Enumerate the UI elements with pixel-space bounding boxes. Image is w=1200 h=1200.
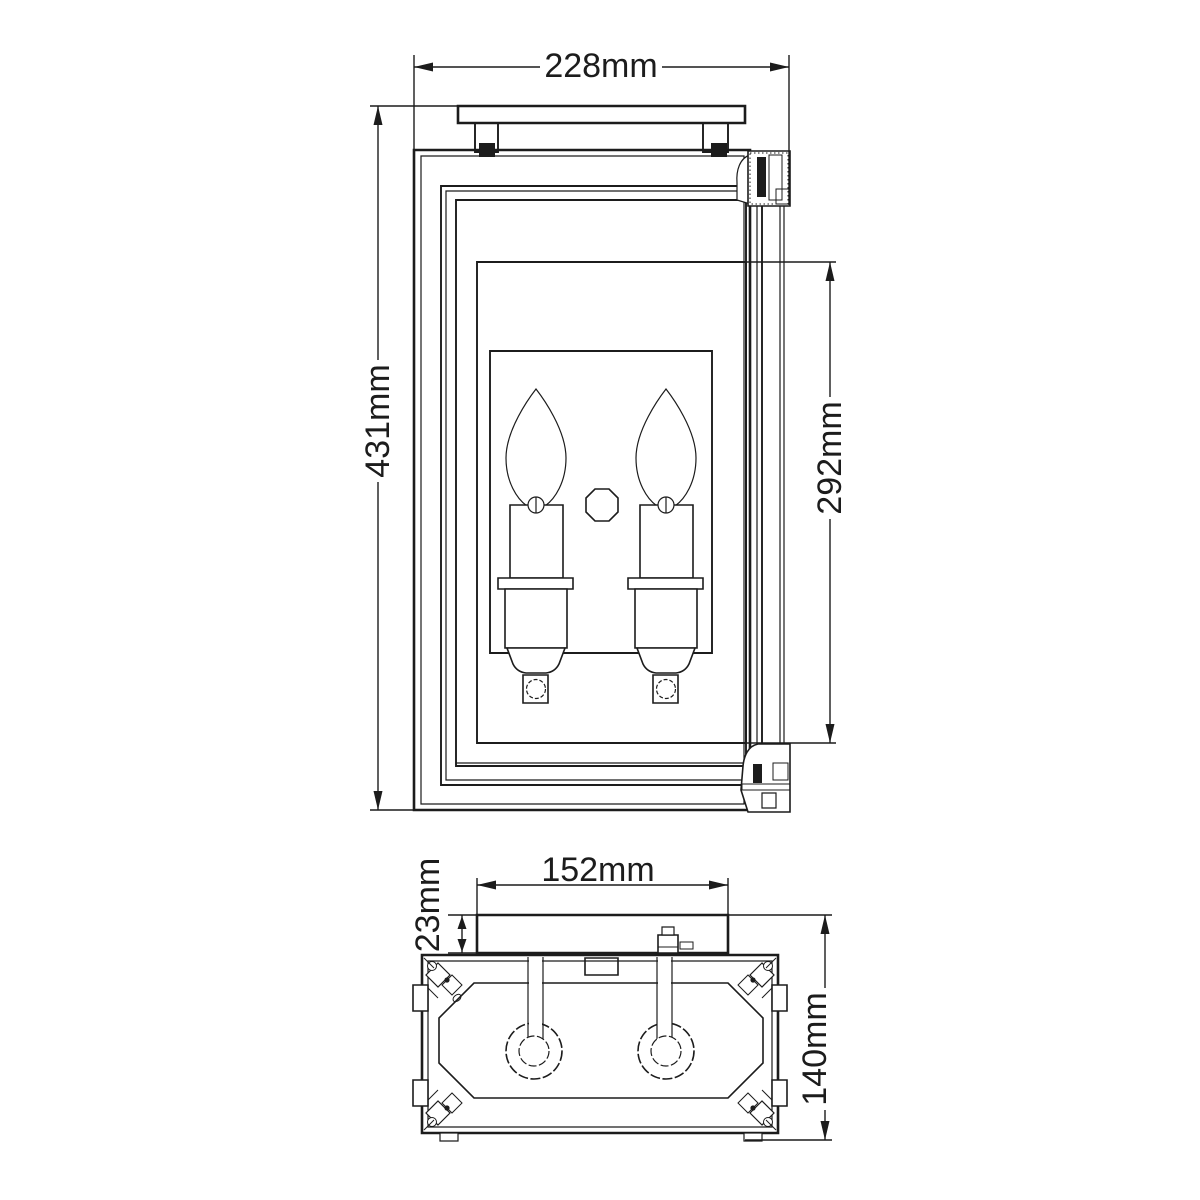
chamfered-roof-edge [439,983,763,1098]
dimension-label-overall-height: 431mm [359,364,397,477]
dimension-label-overall-width: 228mm [544,47,657,85]
socket-top-right [638,957,694,1079]
dimension-label-backplate-width: 152mm [541,851,654,889]
front-elevation-view: 228mm 431mm 292mm [359,47,849,812]
wall-bracket-top [737,151,790,206]
bulb-right [636,389,696,506]
candle-right [628,389,703,703]
corner-clamp-bottom-right [738,1090,776,1130]
wall-bracket-bottom [741,744,790,812]
dimension-backplate-width: 152mm [477,851,728,915]
dimension-label-overall-depth: 140mm [796,992,834,1105]
side-tab [772,985,787,1011]
lantern-body-frame [414,150,784,810]
dimension-overall-width: 228mm [414,47,789,205]
dimension-label-backplate-depth: 23mm [409,858,447,952]
corner-clamp-bottom-left [424,1090,462,1130]
side-tab [413,985,428,1011]
candle-left [498,389,573,703]
corner-clamp-top-left [424,958,462,998]
side-tab [772,1080,787,1106]
center-boss [586,489,618,521]
wall-backplate [477,915,728,953]
dimension-overall-height: 431mm [359,106,458,810]
dimension-label-glass-height: 292mm [811,401,849,514]
body-outline [413,955,787,1141]
corner-clamp-top-right [738,958,776,998]
bulb-left [506,389,566,506]
lantern-dimension-drawing: 228mm 431mm 292mm [0,0,1200,1200]
side-tab [413,1080,428,1106]
top-plan-view: 152mm 23mm 140mm [409,851,834,1141]
wiring-hub [658,935,678,953]
dimension-backplate-depth: 23mm [409,858,477,953]
technical-drawing-page: 228mm 431mm 292mm [0,0,1200,1200]
socket-top-left [506,957,562,1079]
